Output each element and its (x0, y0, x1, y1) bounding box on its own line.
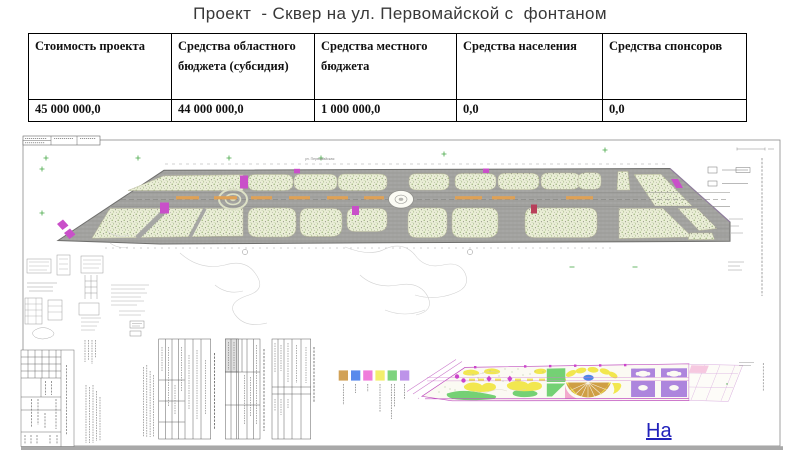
svg-text:ул. Первомайская: ул. Первомайская (305, 157, 334, 161)
